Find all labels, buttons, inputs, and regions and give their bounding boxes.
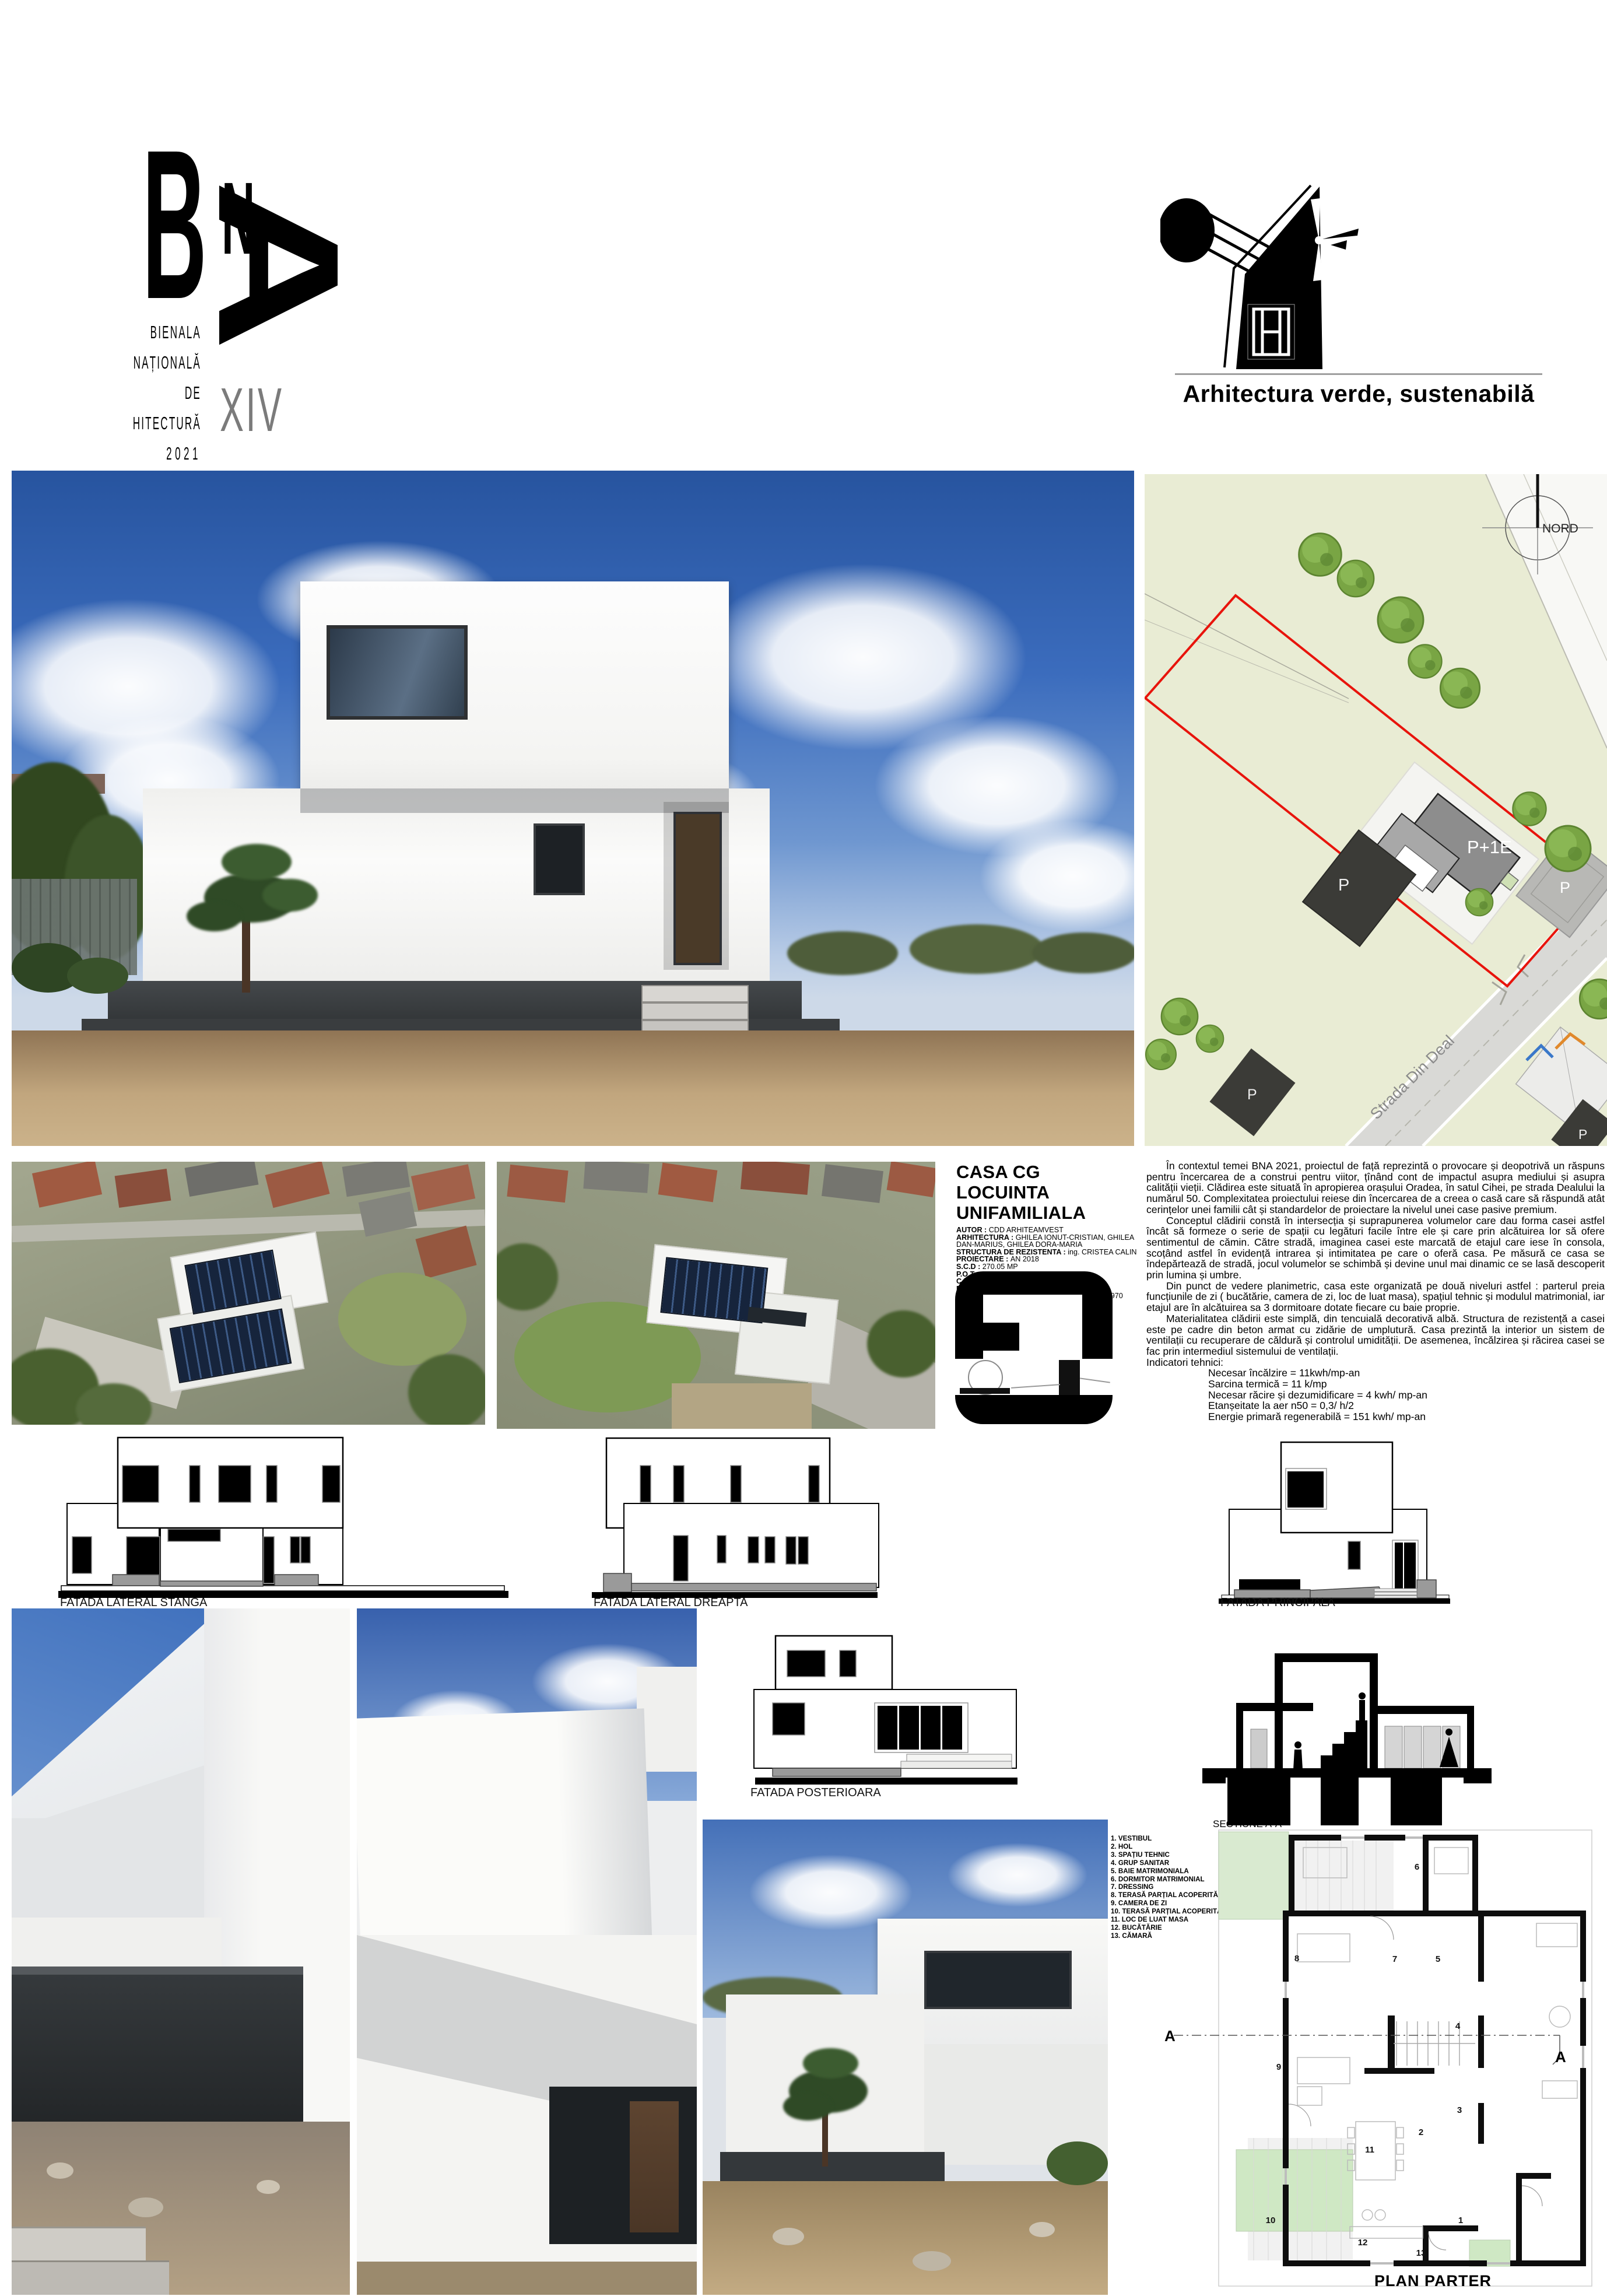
ground-dirt (12, 1030, 1134, 1146)
step (641, 1002, 749, 1020)
wind-turbine-icon (1311, 198, 1359, 281)
roof (342, 1162, 410, 1197)
theme-title: Arhitectura verde, sustenabilă (1175, 380, 1542, 408)
house-upper-window (327, 625, 468, 720)
shed-roof (359, 1191, 417, 1236)
theme-divider (1175, 373, 1542, 375)
plan-room-number: 4 (1455, 2021, 1461, 2031)
plan-room-number: 2 (1419, 2127, 1423, 2137)
elevation-back: FATADA POSTERIOARA (743, 1627, 1041, 1802)
subject-house-roof (147, 1228, 360, 1396)
indicator-line: Necesar încălzire = 11kwh/mp-an (1146, 1368, 1605, 1379)
step (641, 985, 749, 1002)
photo-detail-3 (703, 1820, 1108, 2295)
floor-plan: A A 1 2 3 4 5 6 7 8 9 10 11 12 13 (1163, 1824, 1607, 2291)
bna-logo: B N A BIENALA NAȚIONALĂ DE ARHITECTURĂ 2… (131, 133, 423, 489)
theme-pictogram (1160, 175, 1545, 373)
roof (415, 1226, 476, 1279)
aerial-photo-2 (497, 1162, 935, 1429)
roof (741, 1162, 810, 1195)
logo-block (1059, 1360, 1080, 1395)
treeline (1032, 933, 1134, 973)
elevation-left: FATADA LATERAL STANGA (55, 1426, 510, 1607)
roof (185, 1162, 259, 1197)
plan-room-number: 10 (1266, 2216, 1276, 2225)
roof (583, 1162, 649, 1193)
section-marker-a: A (1555, 2048, 1566, 2066)
presentation-board: B N A BIENALA NAȚIONALĂ DE ARHITECTURĂ 2… (0, 0, 1607, 2296)
white-parapet (637, 1667, 697, 1772)
white-cantilever (357, 1708, 652, 1963)
logo-notch (983, 1323, 1019, 1351)
ribbon-window (924, 1951, 1072, 2009)
roof (265, 1162, 329, 1208)
description-paragraph: Din punct de vedere planimetric, casa es… (1146, 1281, 1605, 1313)
pine-canopy (187, 901, 242, 931)
main-photo (12, 471, 1134, 1146)
indicator-line: Energie primară regenerabilă = 151 kwh/ … (1146, 1411, 1605, 1422)
subject-house-roof (641, 1226, 848, 1389)
indicator-line: Necesar răcire și dezumidificare = 4 kwh… (1146, 1390, 1605, 1401)
field-value: ing. CRISTEA CALIN (1068, 1248, 1136, 1256)
plan-stairs (1394, 2021, 1475, 2066)
concrete-step (12, 2227, 146, 2262)
roof (822, 1164, 883, 1203)
elevation-back-label: FATADA POSTERIOARA (750, 1786, 881, 1799)
plan-room-number: 6 (1415, 1862, 1419, 1872)
plan-room-number: 11 (1365, 2145, 1374, 2155)
tree (408, 1354, 485, 1425)
neighbour-building-label: P (1578, 1127, 1587, 1142)
roof (658, 1163, 718, 1203)
pine-canopy (783, 2092, 833, 2120)
planter (12, 1975, 303, 2125)
roof (411, 1164, 475, 1210)
pine-trunk (242, 914, 250, 993)
entrance-steps (1374, 1589, 1417, 1598)
tree (497, 1243, 558, 1310)
north-label: NORD (1542, 522, 1578, 535)
indicator-line: Etanșeitate la aer n50 = 0,3/ h/2 (1146, 1400, 1605, 1411)
bna-caption-line: ARHITECTURĂ (131, 412, 201, 433)
wood-door (630, 2101, 679, 2232)
tree (867, 1310, 935, 1377)
plan-label: PLAN PARTER (1374, 2272, 1492, 2290)
elevation-right-label: FATADA LATERAL DREAPTA (594, 1596, 748, 1607)
indicator-line: Sarcina termică = 11 k/mp (1146, 1379, 1605, 1390)
stone (257, 2180, 280, 2194)
bna-caption-year: 2021 (166, 444, 201, 464)
elevation-front-label: FATADA PRINCIPALA (1220, 1596, 1335, 1607)
plan-room-number: 9 (1276, 2062, 1281, 2072)
stone (47, 2162, 73, 2179)
elevation-right: FATADA LATERAL DREAPTA (589, 1426, 1044, 1607)
house-footprint-label: P+1E (1467, 837, 1512, 857)
gravel-ground (703, 2181, 1108, 2295)
house-small-window (534, 823, 585, 895)
project-description: În contextul temei BNA 2021, proiectul d… (1146, 1161, 1605, 1422)
ground-strip (357, 2262, 697, 2295)
bna-letter-a: A (183, 180, 374, 351)
treeline (787, 931, 898, 975)
plan-room-number: 7 (1392, 1954, 1397, 1964)
plan-room-number: 8 (1294, 1954, 1299, 1964)
description-paragraph: Conceptul clădirii constă în intersecția… (1146, 1215, 1605, 1281)
plan-room-number: 3 (1457, 2105, 1462, 2115)
pine-canopy (222, 844, 292, 880)
bna-caption-line: DE (185, 383, 201, 404)
office-logo (955, 1271, 1113, 1424)
neighbour-building-label: P (1247, 1086, 1257, 1103)
description-paragraph: În contextul temei BNA 2021, proiectul d… (1146, 1161, 1605, 1215)
bna-caption-line: BIENALA (150, 323, 201, 343)
planter-edge (12, 1967, 303, 1975)
entrance-door (673, 812, 722, 965)
site-plan: Strada Din Deal P+1E P P P P (1145, 474, 1607, 1146)
bush (1047, 2141, 1108, 2185)
description-paragraph: Materialitatea clădirii este simplă, din… (1146, 1313, 1605, 1357)
neighbour-building-label: P (1338, 876, 1349, 895)
plan-room-number: 1 (1458, 2216, 1463, 2225)
photo-detail-2 (357, 1608, 697, 2295)
plan-room-number: 5 (1436, 1954, 1440, 1964)
elevation-left-label: FATADA LATERAL STANGA (60, 1596, 208, 1607)
project-field: ARHITECTURA : GHILEA IONUT-CRISTIAN, GHI… (956, 1234, 1138, 1249)
dirt-yard (672, 1383, 812, 1429)
project-title-line2: LOCUINTA UNIFAMILIALA (956, 1182, 1138, 1223)
photo-detail-1 (12, 1608, 350, 2295)
stone (773, 2228, 804, 2245)
project-title-line1: CASA CG (956, 1162, 1138, 1182)
aerial-photo-1 (12, 1162, 485, 1425)
plan-room-number: 12 (1358, 2238, 1368, 2248)
cloud (948, 1843, 1087, 1907)
stone (128, 2197, 163, 2217)
stone (1029, 2222, 1055, 2237)
section-stairs (1309, 1720, 1367, 1768)
bna-caption-line: NAȚIONALĂ (134, 352, 201, 373)
pine-canopy (803, 2048, 858, 2078)
roof (887, 1162, 935, 1197)
roof (507, 1165, 568, 1203)
logo-bench (960, 1388, 1010, 1394)
indicators-title: Indicatori tehnici: (1146, 1357, 1605, 1368)
roof (32, 1162, 102, 1208)
treeline (910, 924, 1044, 974)
concrete-step (12, 2260, 169, 2295)
person-silhouette (1359, 1692, 1366, 1721)
bna-edition: XIV (220, 376, 284, 444)
theme-logo: Arhitectura verde, sustenabilă (1160, 175, 1545, 408)
elevation-front: FATADA PRINCIPALA (1210, 1426, 1589, 1607)
plan-room-number: 13 (1416, 2248, 1426, 2258)
section-drawing (1201, 1645, 1493, 1831)
stone (913, 2251, 951, 2271)
section-marker-a: A (1164, 2027, 1176, 2045)
roof (115, 1169, 171, 1208)
parking-label: P (1560, 879, 1570, 896)
pine-canopy (262, 879, 318, 912)
bush (67, 958, 128, 994)
person-silhouette (1293, 1741, 1303, 1769)
